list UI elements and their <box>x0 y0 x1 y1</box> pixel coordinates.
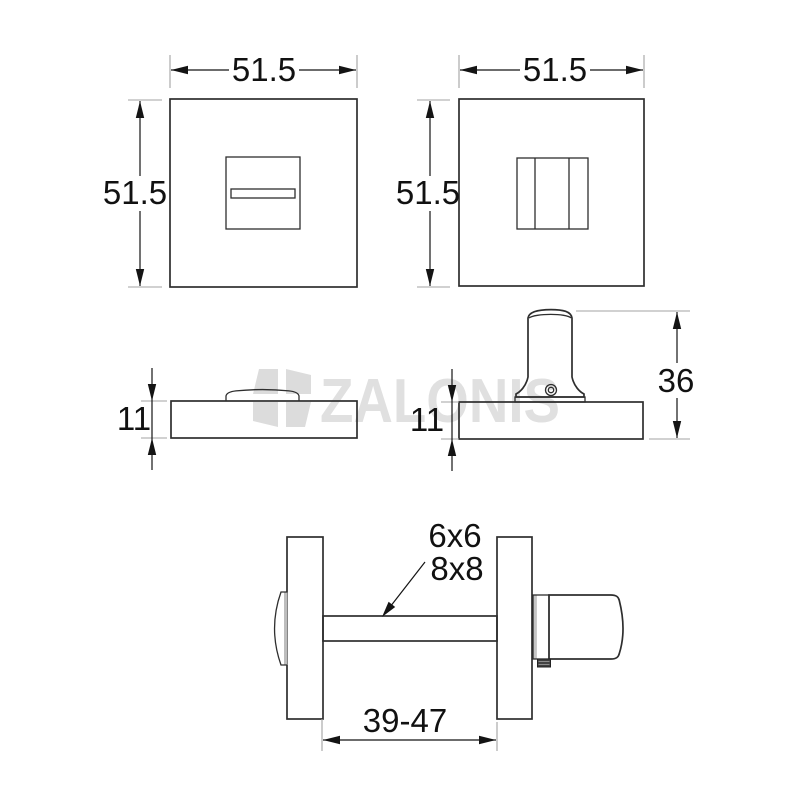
thumbturn-flange-seat <box>534 596 537 659</box>
grub-screw-body <box>538 659 551 667</box>
leader-arrow-icon <box>382 602 395 617</box>
spindle-size-label-top: 6x6 <box>428 517 481 554</box>
dim-side-left-thickness: 11 <box>117 368 167 470</box>
view-front-emergency-release <box>170 99 357 287</box>
arrow-down-icon <box>148 384 156 401</box>
arrow-down-icon <box>673 421 681 438</box>
rosette-outline <box>459 99 644 286</box>
dimension-label: 11 <box>410 401 444 438</box>
leader-line <box>390 562 425 607</box>
dimension-label: 51.5 <box>523 51 587 88</box>
coin-slot <box>231 189 295 198</box>
arrow-down-icon <box>426 269 434 286</box>
release-disc-seat <box>284 593 287 666</box>
arrow-down-icon <box>136 269 144 286</box>
brand-logo-icon <box>253 369 311 427</box>
thumbturn-insert-outline <box>517 158 588 229</box>
dim-thumbturn-height: 36 <box>576 311 694 439</box>
release-insert-outline <box>226 157 300 229</box>
dimension-label: 51.5 <box>396 174 460 211</box>
dimension-label: 39-47 <box>363 702 447 739</box>
dimension-label: 11 <box>117 400 151 437</box>
arrow-right-icon <box>479 736 496 744</box>
dim-spindle-span: 39-47 <box>322 702 497 751</box>
arrow-up-icon <box>673 312 681 329</box>
technical-drawing-page: ZALONIS 51.5 51.5 51.5 <box>0 0 800 800</box>
grub-screw <box>538 659 551 667</box>
drawing-canvas: ZALONIS 51.5 51.5 51.5 <box>0 0 800 800</box>
dimension-label: 36 <box>658 362 695 399</box>
view-front-thumbturn <box>459 99 644 286</box>
knob-top-rim <box>529 314 571 318</box>
arrow-up-icon <box>426 101 434 118</box>
left-rosette-section <box>287 537 323 719</box>
dim-front-right-height: 51.5 <box>396 100 460 287</box>
arrow-right-icon <box>339 66 356 74</box>
thumbturn-knob-section <box>549 595 623 659</box>
arrow-left-icon <box>323 736 340 744</box>
right-rosette-section <box>497 537 532 719</box>
callout-spindle-size: 6x6 8x8 <box>382 517 484 617</box>
dim-front-right-width: 51.5 <box>459 51 644 88</box>
dimension-label: 51.5 <box>103 174 167 211</box>
dimension-label: 51.5 <box>232 51 296 88</box>
dim-front-left-width: 51.5 <box>170 51 357 88</box>
spindle-size-label-bottom: 8x8 <box>430 550 483 587</box>
arrow-left-icon <box>460 66 477 74</box>
arrow-up-icon <box>148 438 156 455</box>
arrow-up-icon <box>136 101 144 118</box>
arrow-up-icon <box>448 439 456 456</box>
arrow-left-icon <box>171 66 188 74</box>
dim-front-left-height: 51.5 <box>103 100 167 287</box>
rosette-outline <box>170 99 357 287</box>
arrow-right-icon <box>626 66 643 74</box>
spindle <box>323 616 497 641</box>
